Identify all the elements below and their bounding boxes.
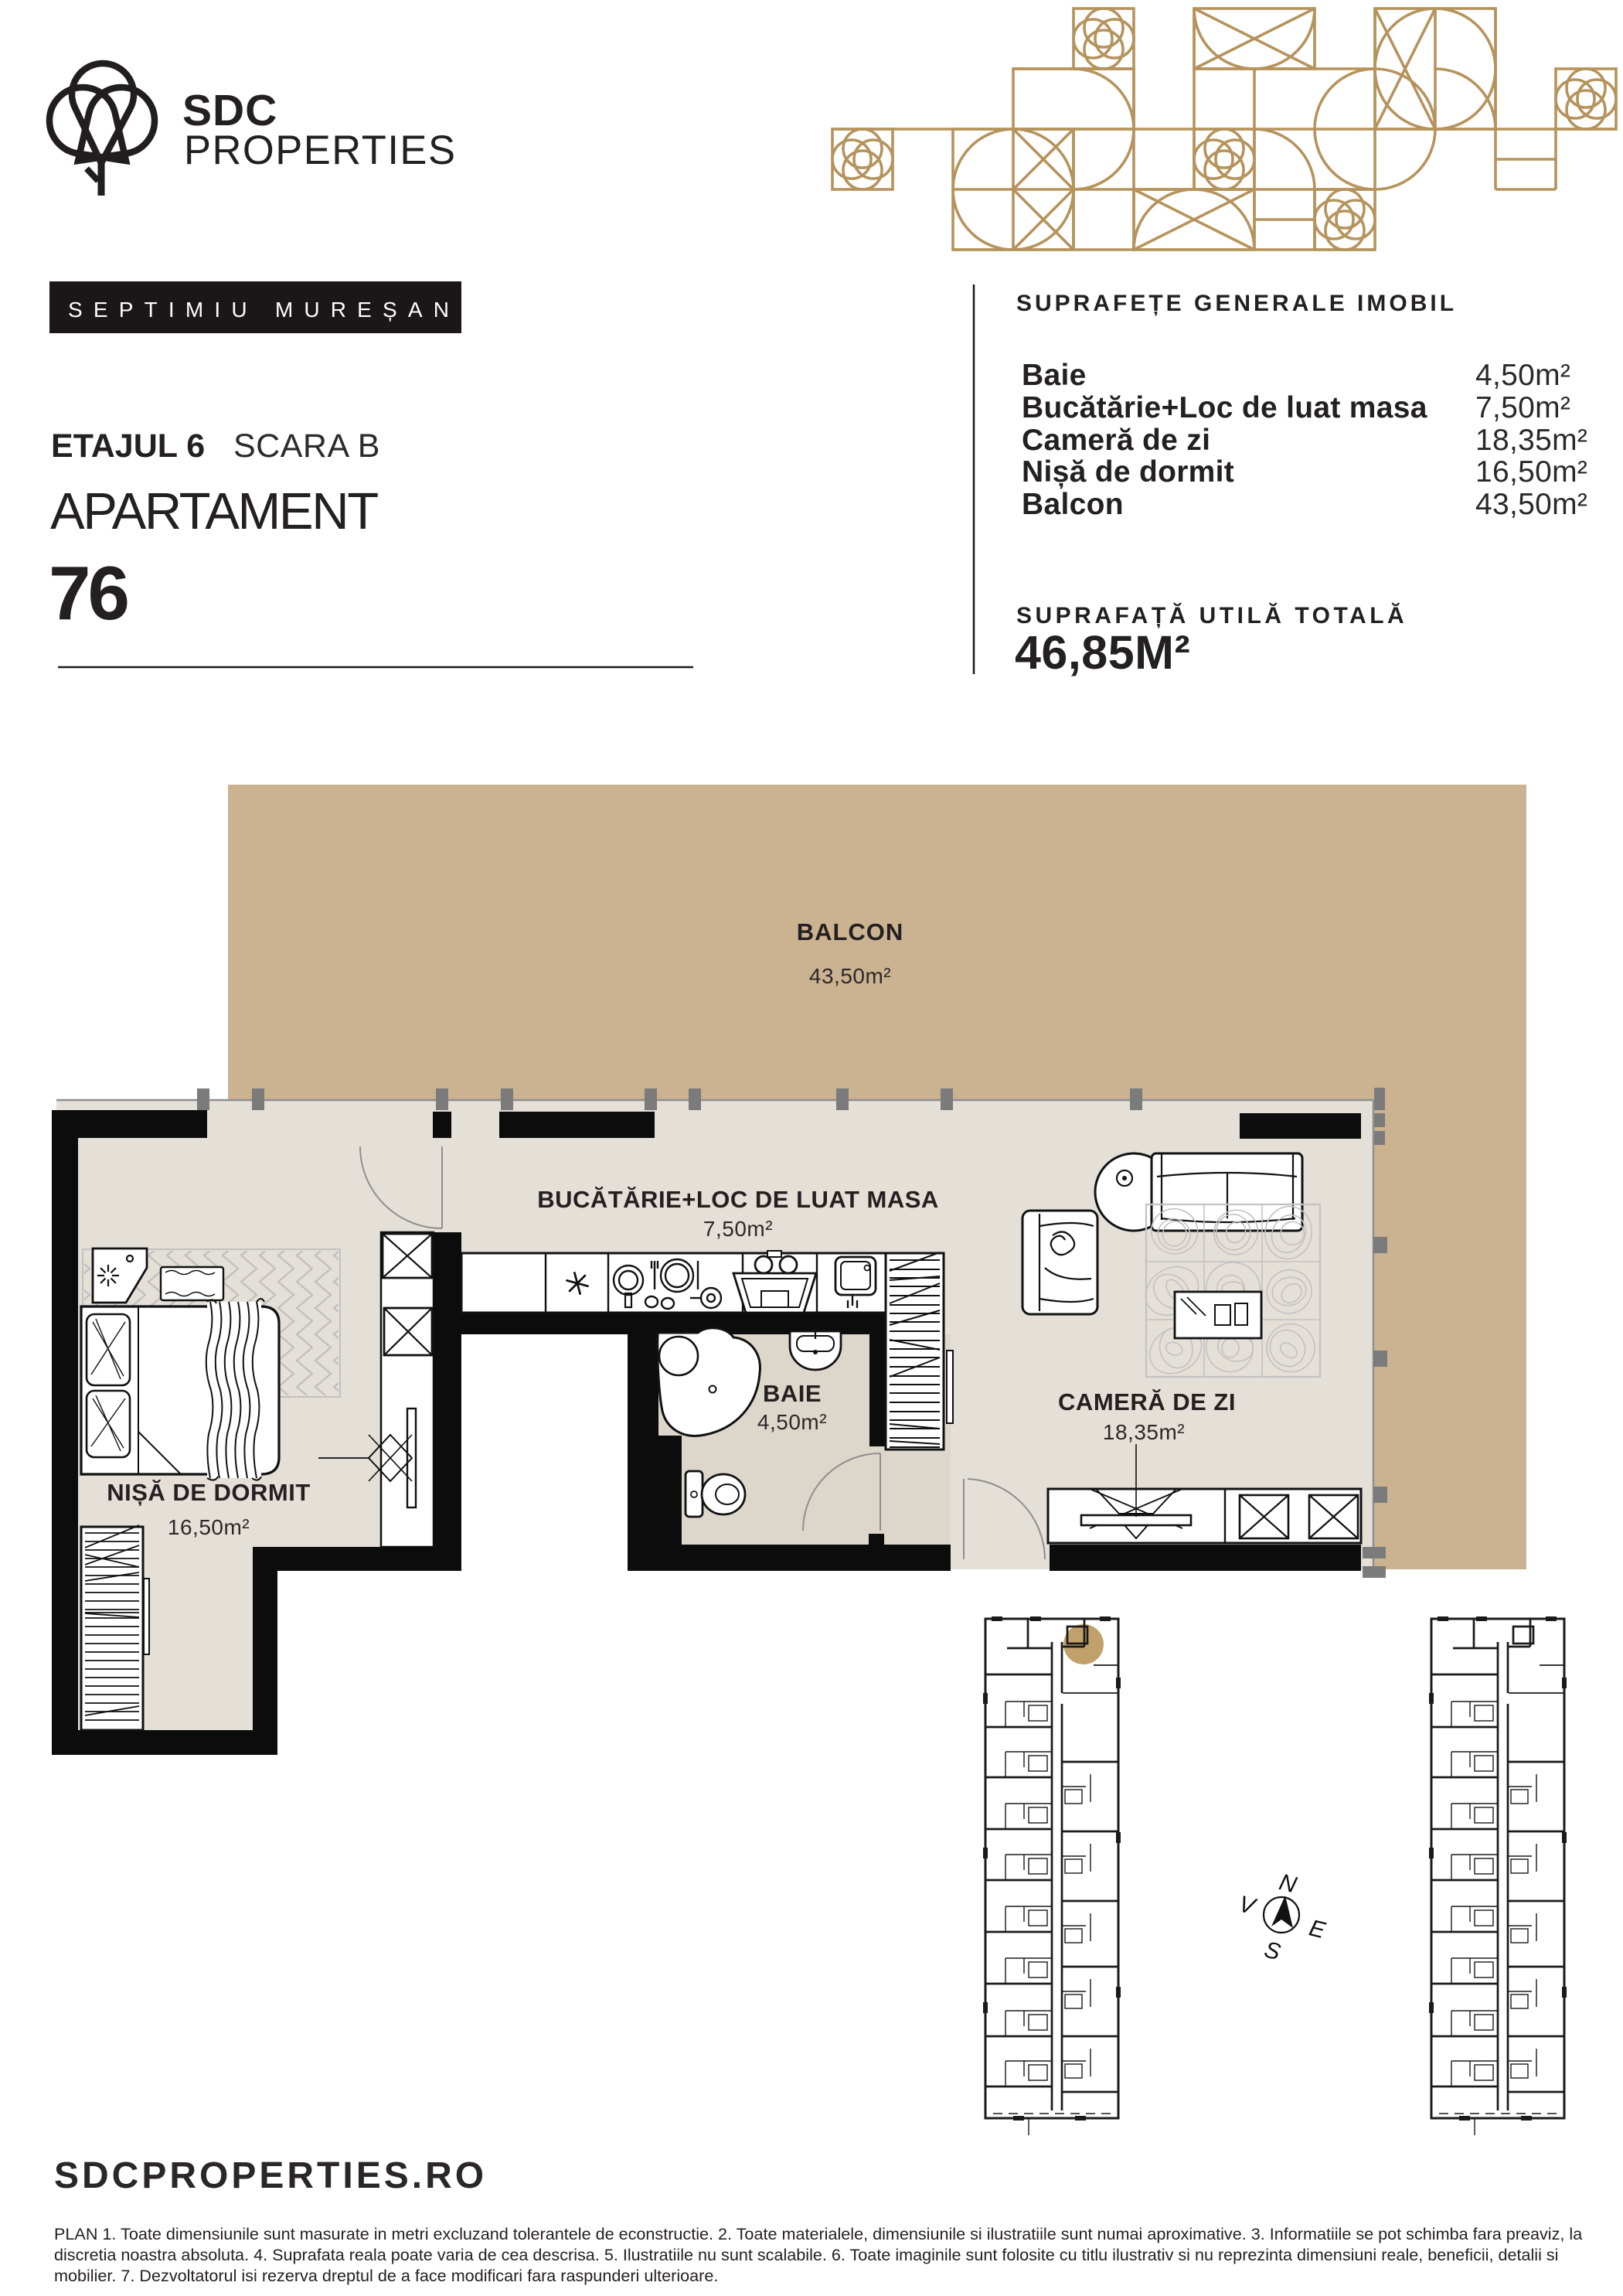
svg-text:Baie: Baie (1022, 359, 1087, 392)
svg-text:PROPERTIES: PROPERTIES (184, 128, 456, 173)
svg-text:mobilier. 7. Dezvoltatorul isi: mobilier. 7. Dezvoltatorul isi rezerva d… (54, 2266, 718, 2285)
svg-text:SEPTIMIU MUREȘAN: SEPTIMIU MUREȘAN (68, 298, 460, 322)
svg-text:SUPRAFAȚĂ UTILĂ TOTALĂ: SUPRAFAȚĂ UTILĂ TOTALĂ (1016, 602, 1407, 629)
svg-text:ETAJUL 6: ETAJUL 6 (51, 428, 205, 465)
svg-text:18,35m²: 18,35m² (1103, 1420, 1185, 1444)
svg-text:7,50m²: 7,50m² (1475, 391, 1570, 424)
svg-text:7,50m²: 7,50m² (703, 1217, 773, 1241)
svg-text:BAIE: BAIE (763, 1380, 822, 1407)
svg-text:SUPRAFEȚE GENERALE IMOBIL: SUPRAFEȚE GENERALE IMOBIL (1016, 291, 1457, 316)
svg-text:CAMERĂ DE ZI: CAMERĂ DE ZI (1058, 1388, 1236, 1415)
svg-text:PLAN 1. Toate dimensiunile sun: PLAN 1. Toate dimensiunile sunt masurate… (54, 2224, 1583, 2243)
svg-text:BUCĂTĂRIE+LOC DE LUAT MASA: BUCĂTĂRIE+LOC DE LUAT MASA (537, 1186, 939, 1213)
svg-text:76: 76 (49, 550, 128, 635)
svg-text:Nișă de dormit: Nișă de dormit (1022, 455, 1234, 489)
svg-text:SDCPROPERTIES.RO: SDCPROPERTIES.RO (54, 2155, 487, 2196)
svg-text:NIȘĂ DE DORMIT: NIȘĂ DE DORMIT (107, 1479, 311, 1506)
svg-text:18,35m²: 18,35m² (1475, 424, 1587, 457)
svg-text:16,50m²: 16,50m² (1475, 455, 1587, 489)
svg-text:43,50m²: 43,50m² (1475, 488, 1587, 521)
svg-text:discretia noastra absoluta. 4.: discretia noastra absoluta. 4. Suprafata… (54, 2245, 1558, 2264)
svg-text:16,50m²: 16,50m² (168, 1515, 250, 1539)
svg-text:BALCON: BALCON (797, 918, 904, 945)
svg-text:Bucătărie+Loc de luat masa: Bucătărie+Loc de luat masa (1022, 391, 1427, 424)
svg-text:Cameră de zi: Cameră de zi (1022, 424, 1210, 457)
svg-text:4,50m²: 4,50m² (757, 1410, 827, 1434)
svg-text:SCARA B: SCARA B (233, 428, 380, 465)
svg-text:Balcon: Balcon (1022, 488, 1124, 521)
svg-text:46,85M²: 46,85M² (1015, 626, 1190, 679)
svg-text:APARTAMENT: APARTAMENT (50, 482, 378, 540)
svg-text:43,50m²: 43,50m² (809, 964, 891, 988)
svg-text:4,50m²: 4,50m² (1475, 359, 1570, 392)
